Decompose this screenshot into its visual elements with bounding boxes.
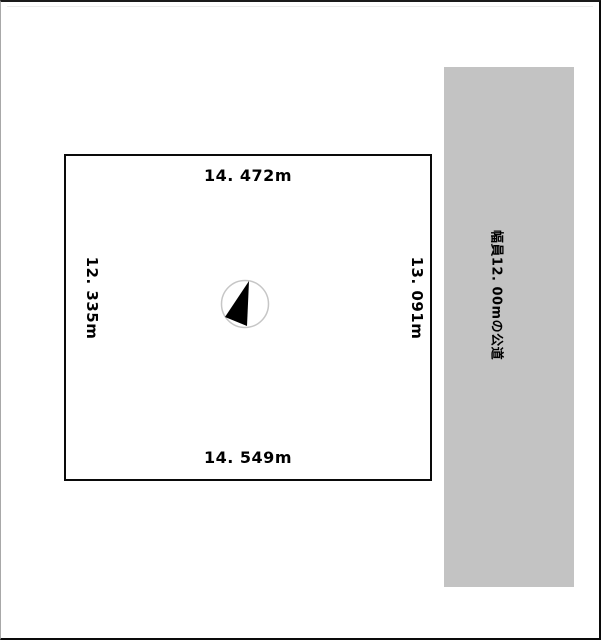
road-strip [444, 67, 574, 587]
dimension-label-top: 14. 472m [64, 166, 432, 185]
dimension-label-bottom: 14. 549m [64, 448, 432, 467]
dimension-label-right: 13. 091m [408, 257, 426, 340]
site-plan-diagram: 14. 472m 14. 549m 12. 335m 13. 091m 幅員12… [0, 0, 601, 640]
road-width-label: 幅員12. 00mの公道 [489, 230, 508, 360]
dimension-label-left: 12. 335m [83, 257, 101, 340]
frame-inner-hairline [7, 6, 593, 7]
north-arrow-icon [220, 279, 270, 329]
